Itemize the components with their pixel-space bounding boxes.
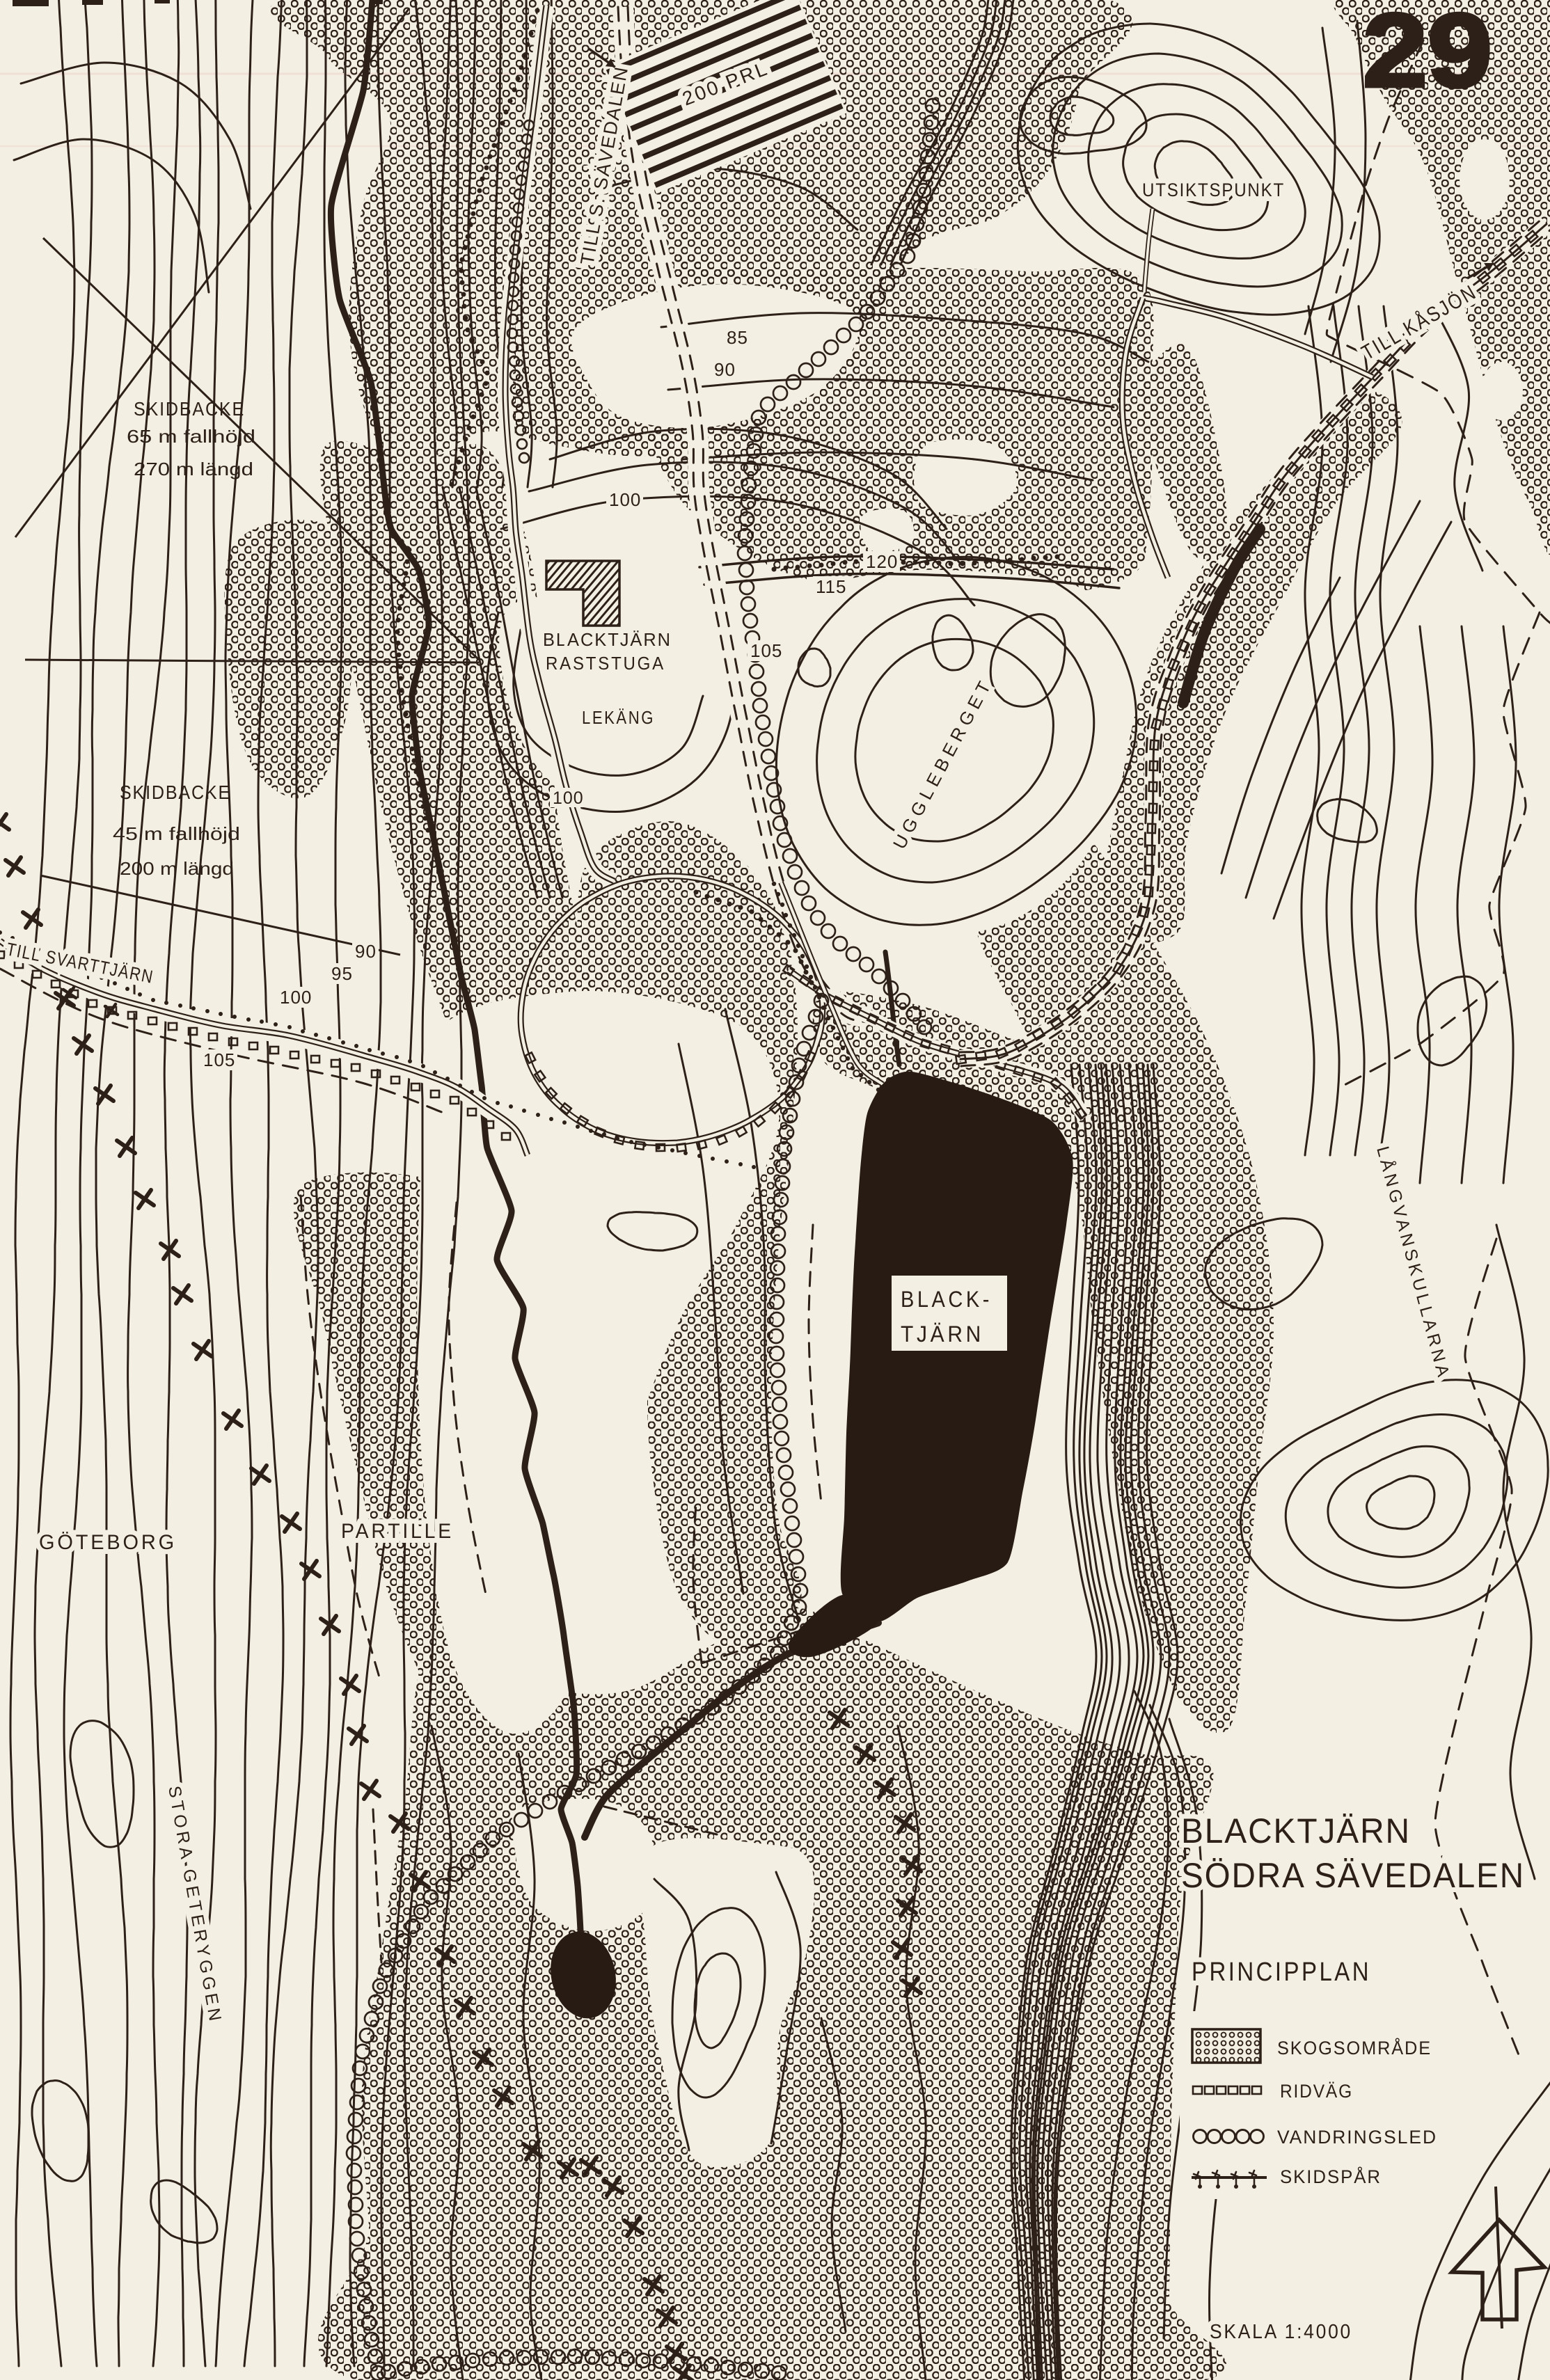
svg-text:90: 90 [714, 359, 736, 380]
svg-text:SÖDRA SÄVEDALEN: SÖDRA SÄVEDALEN [1181, 1856, 1525, 1895]
svg-text:105: 105 [203, 1049, 235, 1070]
svg-text:29: 29 [1363, 0, 1492, 109]
svg-text:GÖTEBORG: GÖTEBORG [39, 1531, 177, 1554]
svg-text:SKALA 1:4000: SKALA 1:4000 [1210, 2321, 1352, 2343]
svg-text:PRINCIPPLAN: PRINCIPPLAN [1192, 1958, 1371, 1987]
svg-text:100: 100 [553, 788, 584, 808]
svg-text:SKIDSPÅR: SKIDSPÅR [1280, 2166, 1382, 2187]
svg-text:SKIDBACKE: SKIDBACKE [120, 782, 231, 803]
svg-text:120: 120 [866, 551, 898, 572]
svg-text:SKIDBACKE: SKIDBACKE [134, 398, 245, 420]
svg-text:RIDVÄG: RIDVÄG [1280, 2081, 1353, 2102]
svg-text:90: 90 [355, 941, 377, 962]
svg-text:TJÄRN: TJÄRN [901, 1322, 984, 1347]
svg-text:LEKÄNG: LEKÄNG [582, 707, 655, 728]
svg-text:SKOGSOMRÅDE: SKOGSOMRÅDE [1277, 2037, 1432, 2058]
svg-text:UTSIKTSPUNKT: UTSIKTSPUNKT [1142, 180, 1285, 200]
svg-text:95: 95 [331, 963, 353, 984]
svg-text:85: 85 [727, 327, 748, 348]
svg-text:100: 100 [609, 489, 641, 510]
svg-text:100: 100 [280, 987, 312, 1008]
svg-text:65 m fallhöjd: 65 m fallhöjd [127, 426, 255, 447]
svg-text:200 m längd: 200 m längd [120, 858, 234, 879]
svg-text:BLACK-: BLACK- [901, 1287, 993, 1312]
svg-text:PARTILLE: PARTILLE [341, 1520, 454, 1543]
svg-text:105: 105 [750, 640, 782, 661]
svg-text:VANDRINGSLED: VANDRINGSLED [1277, 2127, 1437, 2148]
svg-text:BLACKTJÄRN: BLACKTJÄRN [1181, 1811, 1411, 1850]
svg-text:RASTSTUGA: RASTSTUGA [546, 653, 665, 674]
svg-text:45 m fallhöjd: 45 m fallhöjd [113, 823, 240, 844]
svg-text:115: 115 [816, 576, 846, 597]
svg-text:BLACKTJÄRN: BLACKTJÄRN [543, 629, 672, 650]
svg-text:270 m längd: 270 m längd [134, 459, 253, 479]
